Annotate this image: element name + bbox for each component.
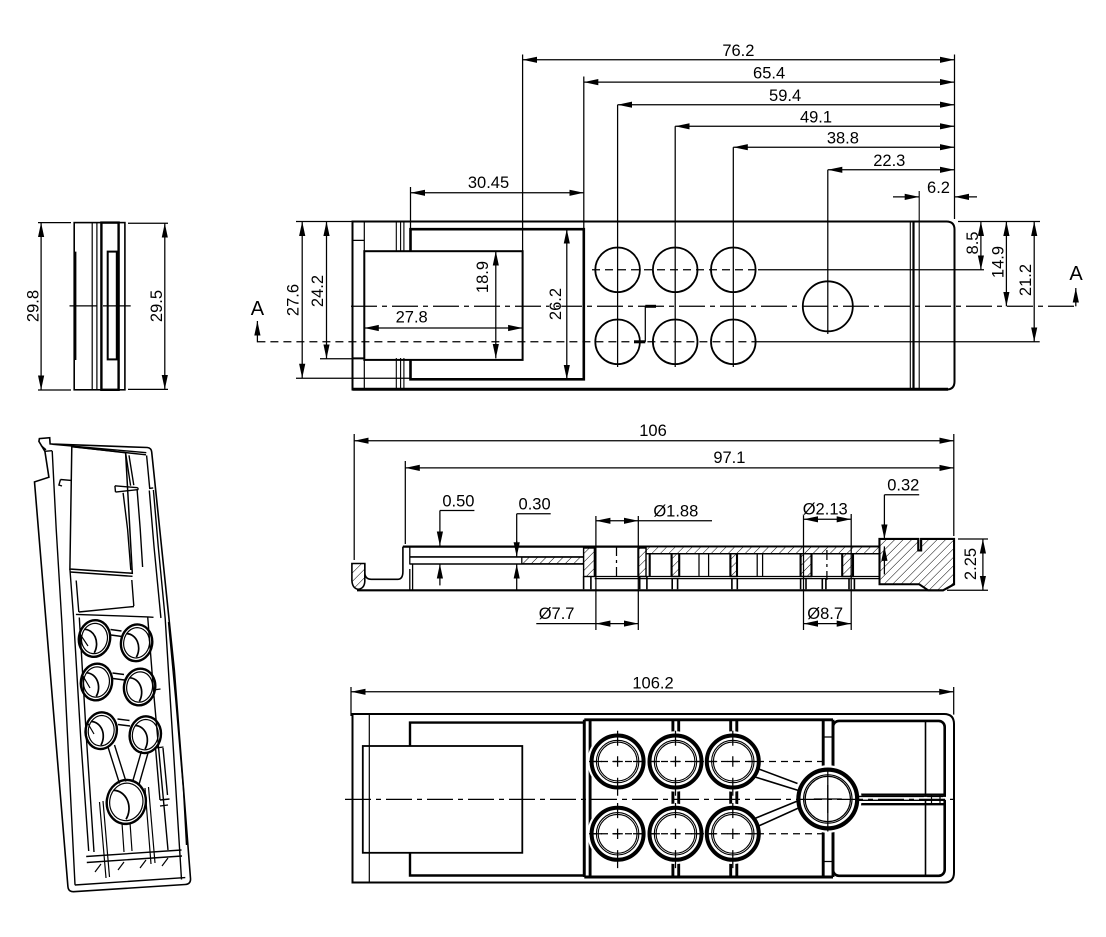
svg-text:22.3: 22.3 xyxy=(873,152,905,170)
svg-text:A: A xyxy=(251,298,265,320)
svg-text:21.2: 21.2 xyxy=(1017,264,1035,296)
svg-text:Ø2.13: Ø2.13 xyxy=(803,501,848,519)
svg-text:Ø1.88: Ø1.88 xyxy=(653,503,698,521)
svg-text:Ø8.7: Ø8.7 xyxy=(807,605,843,623)
svg-text:76.2: 76.2 xyxy=(722,42,754,60)
svg-text:65.4: 65.4 xyxy=(753,64,785,82)
svg-text:26.2: 26.2 xyxy=(547,288,565,320)
svg-text:0.30: 0.30 xyxy=(519,496,551,514)
svg-text:30.45: 30.45 xyxy=(468,174,509,192)
svg-text:Ø7.7: Ø7.7 xyxy=(539,605,575,623)
svg-text:59.4: 59.4 xyxy=(769,87,801,105)
svg-text:27.6: 27.6 xyxy=(284,284,302,316)
svg-text:27.8: 27.8 xyxy=(396,309,428,327)
svg-text:97.1: 97.1 xyxy=(713,449,745,467)
svg-text:18.9: 18.9 xyxy=(474,261,492,293)
svg-text:38.8: 38.8 xyxy=(827,130,859,148)
svg-text:29.5: 29.5 xyxy=(148,290,166,322)
svg-text:24.2: 24.2 xyxy=(309,275,327,307)
svg-text:106: 106 xyxy=(639,422,667,440)
svg-text:8.5: 8.5 xyxy=(964,232,982,255)
svg-text:0.32: 0.32 xyxy=(887,477,919,495)
svg-text:29.8: 29.8 xyxy=(24,290,42,322)
svg-text:49.1: 49.1 xyxy=(800,109,832,127)
svg-text:0.50: 0.50 xyxy=(442,493,474,511)
svg-text:2.25: 2.25 xyxy=(962,548,980,580)
svg-text:A: A xyxy=(1069,263,1083,285)
svg-text:6.2: 6.2 xyxy=(927,179,950,197)
svg-text:106.2: 106.2 xyxy=(632,675,673,693)
svg-text:14.9: 14.9 xyxy=(989,246,1007,278)
